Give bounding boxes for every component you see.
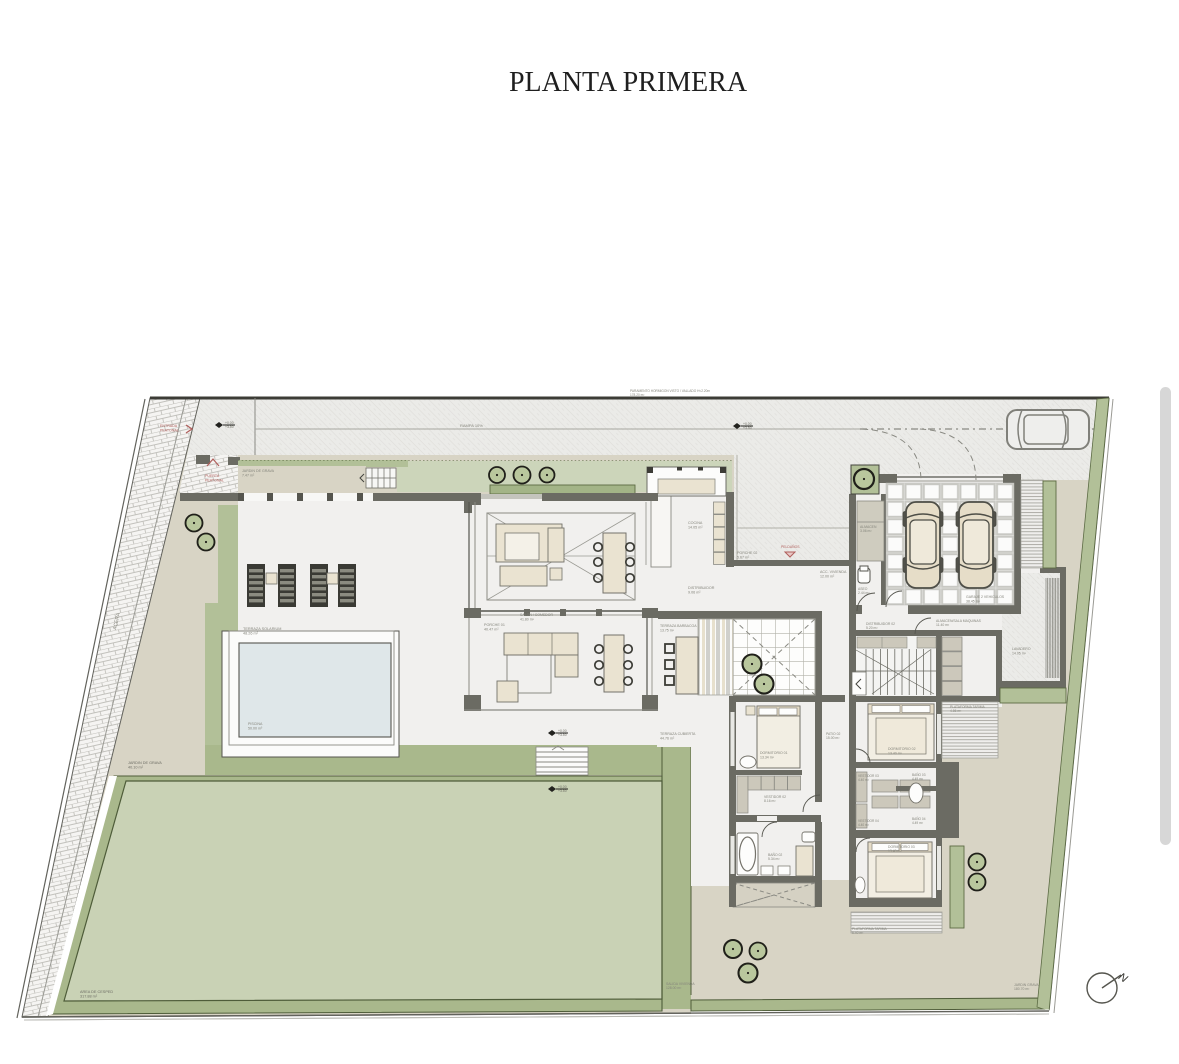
svg-text:PEATONAL: PEATONAL — [205, 478, 224, 482]
svg-text:5.67 m²: 5.67 m² — [737, 555, 750, 559]
svg-text:13.34 m²: 13.34 m² — [760, 755, 775, 759]
svg-text:JARDIN DE GRAVA: JARDIN DE GRAVA — [128, 761, 162, 765]
svg-text:AREA DE CESPED: AREA DE CESPED — [80, 990, 113, 994]
svg-text:JARDIN DE GRAVA: JARDIN DE GRAVA — [242, 469, 275, 473]
svg-text:5.34 m²: 5.34 m² — [768, 857, 780, 861]
svg-text:3.06 m²: 3.06 m² — [860, 529, 872, 533]
svg-text:14.05 m²: 14.05 m² — [1012, 651, 1027, 655]
svg-text:317.88 m²: 317.88 m² — [80, 995, 98, 999]
svg-text:PELDAÑOS: PELDAÑOS — [781, 544, 800, 549]
svg-text:44.76 m²: 44.76 m² — [660, 736, 675, 740]
svg-text:COCINA: COCINA — [688, 521, 703, 525]
svg-text:+3.50: +3.50 — [743, 426, 752, 430]
svg-text:38.45 m²: 38.45 m² — [966, 599, 981, 603]
svg-text:PUERTA: PUERTA — [205, 474, 220, 478]
svg-text:13.75 m²: 13.75 m² — [660, 628, 675, 632]
svg-text:50.00 m³: 50.00 m³ — [248, 726, 263, 730]
svg-text:9.06 m²: 9.06 m² — [688, 591, 701, 595]
svg-text:13.40 m²: 13.40 m² — [888, 751, 903, 755]
svg-text:5.40 m²: 5.40 m² — [852, 931, 864, 935]
svg-text:4.40 m²: 4.40 m² — [858, 778, 869, 782]
svg-text:8.16 m²: 8.16 m² — [764, 799, 776, 803]
svg-text:ENTRADA: ENTRADA — [160, 424, 178, 428]
svg-text:5.20 m²: 5.20 m² — [866, 626, 878, 630]
svg-text:11.40 m²: 11.40 m² — [936, 623, 950, 627]
svg-text:PORCHE 01: PORCHE 01 — [484, 623, 505, 627]
svg-text:180.70 m²: 180.70 m² — [1014, 987, 1030, 991]
svg-text:7.47 m²: 7.47 m² — [242, 473, 255, 477]
svg-text:48.26 m²: 48.26 m² — [243, 632, 259, 636]
svg-text:PLANTA PRIMERA: PLANTA PRIMERA — [509, 67, 748, 98]
svg-text:TERRAZA CUBIERTA: TERRAZA CUBIERTA — [660, 732, 696, 736]
svg-text:40.47 m²: 40.47 m² — [484, 628, 499, 632]
svg-text:128.00 m²: 128.00 m² — [666, 986, 682, 990]
svg-text:RAMPA 10%: RAMPA 10% — [460, 423, 483, 428]
svg-text:ACC. VIVIENDA: ACC. VIVIENDA — [820, 570, 847, 574]
svg-text:+3.50: +3.50 — [558, 733, 567, 737]
svg-text:4.40 m²: 4.40 m² — [858, 823, 869, 827]
svg-text:PISCINA: PISCINA — [248, 722, 263, 726]
svg-text:4.49 m²: 4.49 m² — [912, 821, 923, 825]
svg-text:+3.50: +3.50 — [225, 425, 234, 429]
svg-text:14.05 m²: 14.05 m² — [688, 526, 703, 530]
svg-text:40.10 m²: 40.10 m² — [128, 766, 144, 770]
svg-text:41.80 m²: 41.80 m² — [520, 617, 535, 621]
svg-text:13.40 m²: 13.40 m² — [888, 849, 902, 853]
svg-text:TERRAZA SOLARIUM: TERRAZA SOLARIUM — [243, 627, 281, 631]
svg-text:+3.50: +3.50 — [558, 789, 567, 793]
svg-text:15.00 m²: 15.00 m² — [826, 736, 840, 740]
svg-text:12.00 m²: 12.00 m² — [820, 574, 835, 578]
svg-text:DISTRIBUIDOR: DISTRIBUIDOR — [688, 586, 715, 590]
svg-text:4.49 m²: 4.49 m² — [912, 777, 923, 781]
svg-text:PORCHE 02: PORCHE 02 — [737, 551, 757, 555]
svg-text:4.86 m²: 4.86 m² — [950, 709, 962, 713]
svg-text:178.20 m²: 178.20 m² — [630, 393, 644, 397]
svg-text:PEATONAL: PEATONAL — [160, 428, 179, 432]
